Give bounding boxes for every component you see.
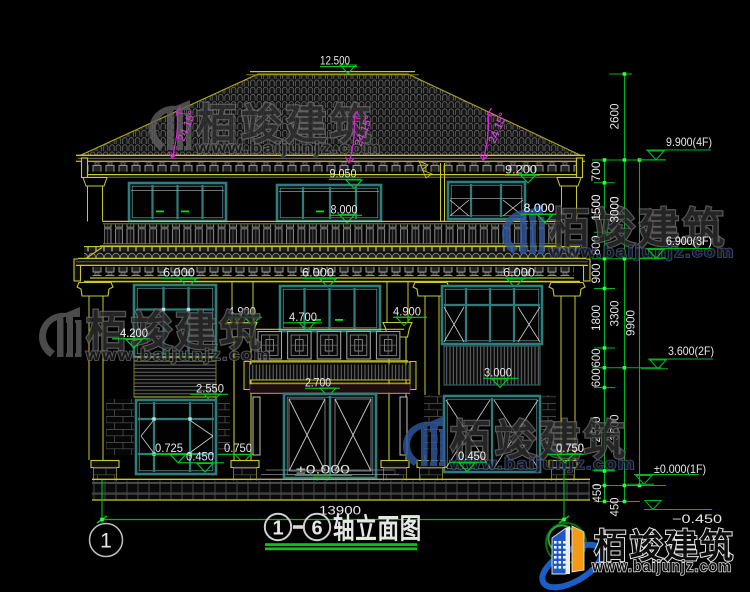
- svg-text:0.750: 0.750: [556, 441, 584, 455]
- svg-text:8.000: 8.000: [524, 201, 555, 215]
- svg-text:450: 450: [608, 497, 622, 516]
- svg-text:1: 1: [100, 530, 112, 553]
- svg-text:www.baijunjz.com: www.baijunjz.com: [591, 559, 732, 576]
- svg-text:4.700: 4.700: [289, 310, 317, 324]
- svg-text:3.600(2F): 3.600(2F): [668, 344, 714, 358]
- svg-text:0.750: 0.750: [224, 441, 252, 455]
- svg-text:6.000: 6.000: [163, 266, 195, 280]
- svg-text:2600: 2600: [608, 103, 622, 129]
- svg-text:600: 600: [589, 348, 603, 367]
- svg-text:9900: 9900: [624, 310, 638, 336]
- svg-text:−0.450: −0.450: [672, 512, 722, 526]
- svg-text:www.baijunjz.com: www.baijunjz.com: [85, 347, 272, 364]
- svg-text:轴立面图: 轴立面图: [333, 512, 422, 544]
- svg-text:2.550: 2.550: [196, 382, 224, 396]
- svg-text:450: 450: [590, 483, 604, 502]
- svg-text:0.450: 0.450: [458, 449, 486, 463]
- svg-text:700: 700: [589, 161, 603, 181]
- svg-text:600: 600: [589, 368, 603, 387]
- svg-text:4.200: 4.200: [120, 326, 148, 340]
- svg-text:9.900(4F): 9.900(4F): [666, 135, 712, 149]
- svg-text:3300: 3300: [608, 300, 622, 326]
- svg-text:±0.000(1F): ±0.000(1F): [654, 462, 706, 476]
- svg-text:0.450: 0.450: [186, 450, 214, 464]
- svg-text:6.000: 6.000: [302, 266, 334, 280]
- svg-text:6.900(3F): 6.900(3F): [666, 234, 712, 248]
- svg-text:1500: 1500: [589, 194, 603, 220]
- svg-text:6: 6: [311, 518, 322, 540]
- svg-text:4.900: 4.900: [393, 305, 421, 319]
- svg-text:1: 1: [272, 518, 283, 540]
- svg-text:3000: 3000: [608, 196, 622, 222]
- svg-text:3.000: 3.000: [484, 366, 512, 380]
- svg-text:2.700: 2.700: [305, 376, 331, 390]
- svg-text:6.000: 6.000: [503, 266, 535, 280]
- svg-text:1800: 1800: [589, 305, 603, 331]
- svg-text:9.050: 9.050: [330, 167, 357, 181]
- svg-text:900: 900: [589, 263, 603, 283]
- svg-text:0.725: 0.725: [155, 441, 183, 455]
